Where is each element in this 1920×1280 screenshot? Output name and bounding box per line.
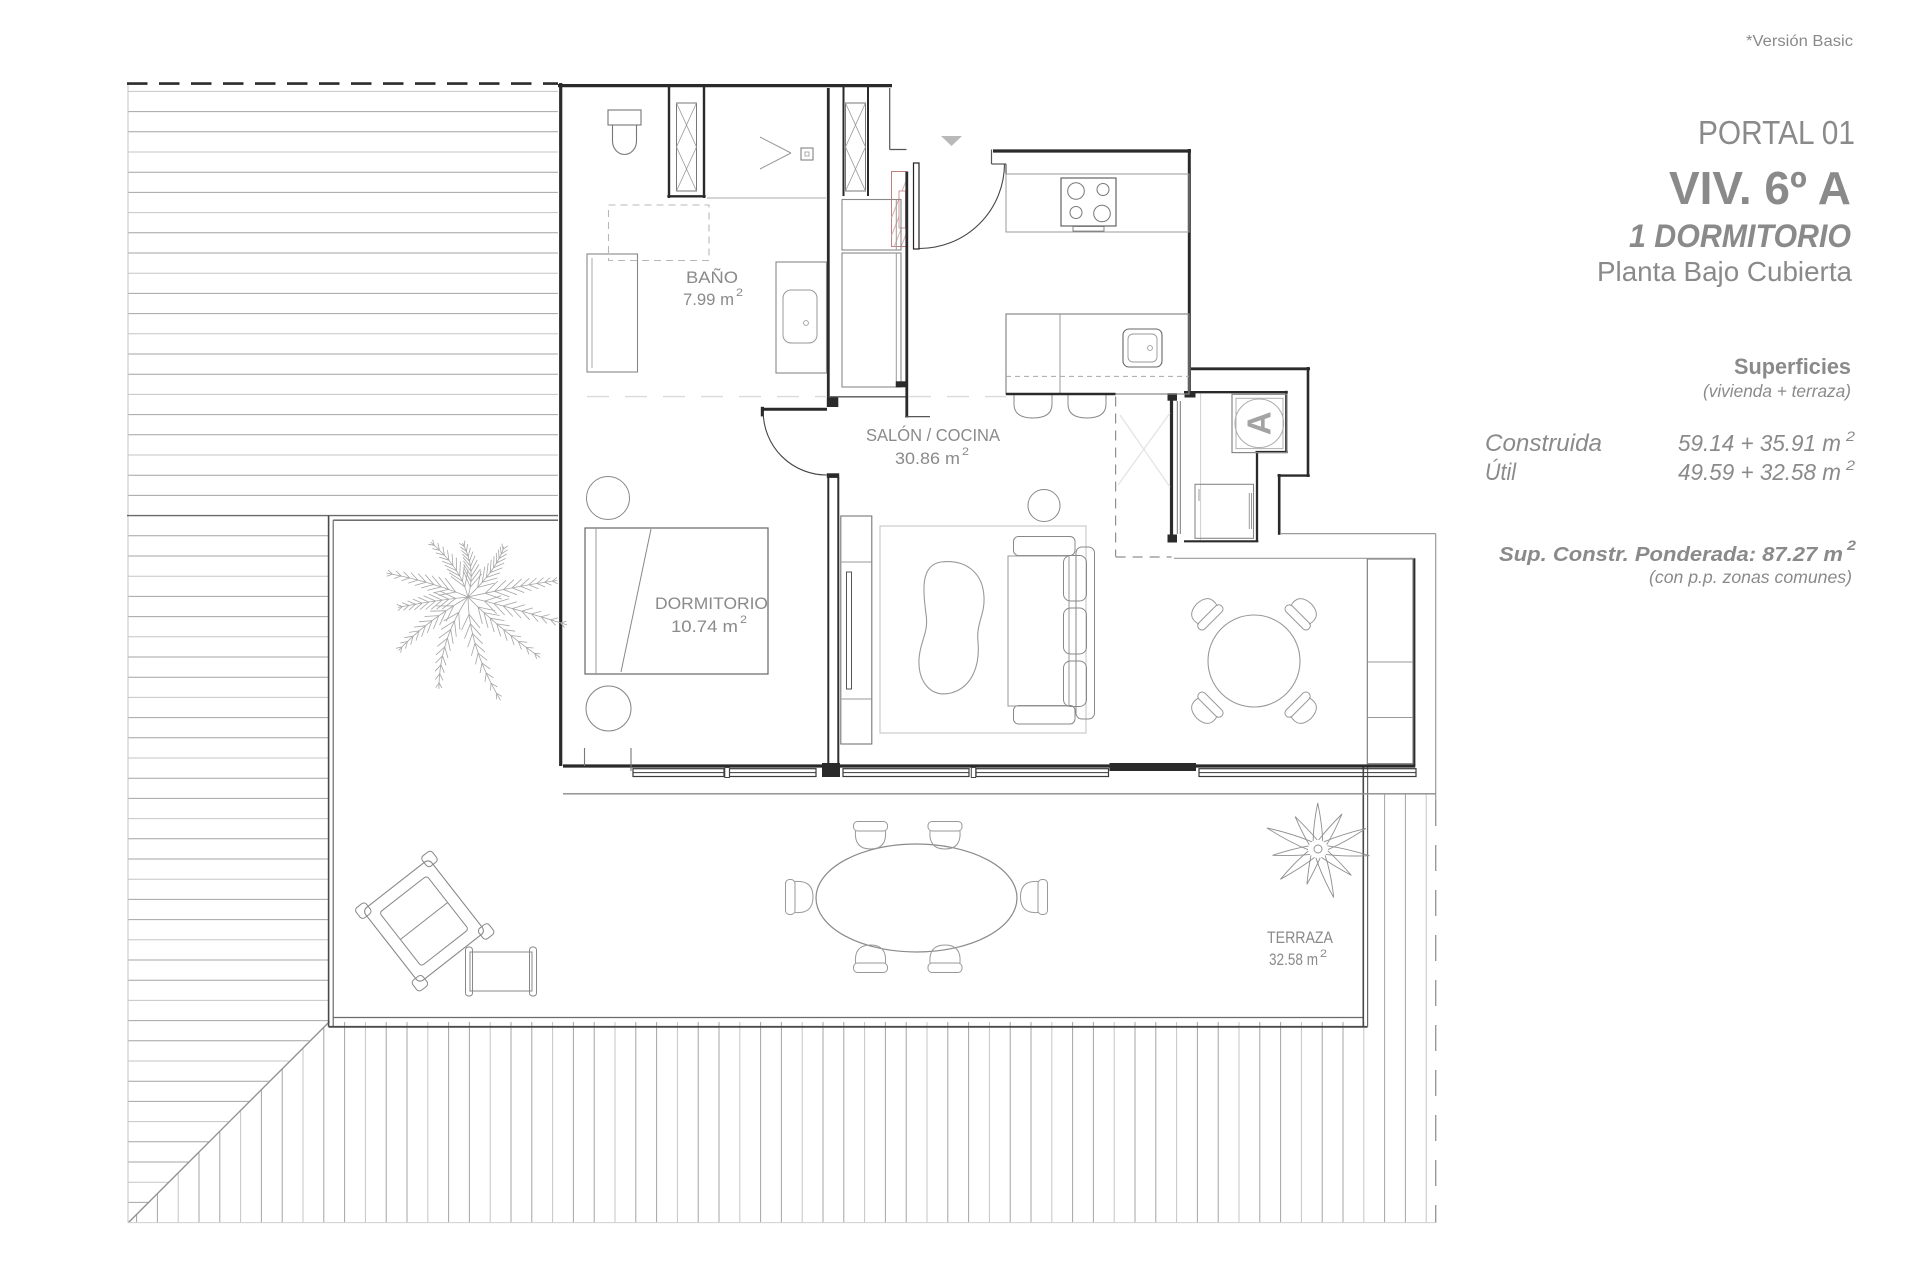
svg-text:2: 2 <box>740 614 747 626</box>
svg-text:*Versión Basic: *Versión Basic <box>1746 33 1853 50</box>
svg-text:2: 2 <box>1845 428 1855 444</box>
svg-text:32.58 m: 32.58 m <box>1269 951 1318 969</box>
svg-text:7.99 m: 7.99 m <box>683 290 734 309</box>
svg-text:2: 2 <box>1845 457 1855 473</box>
svg-text:A: A <box>1241 411 1278 435</box>
svg-text:2: 2 <box>1320 948 1327 960</box>
svg-text:49.59 + 32.58 m: 49.59 + 32.58 m <box>1678 459 1841 485</box>
svg-text:VIV. 6º A: VIV. 6º A <box>1669 162 1851 214</box>
svg-text:TERRAZA: TERRAZA <box>1267 929 1333 947</box>
svg-text:Útil: Útil <box>1485 459 1517 486</box>
svg-text:30.86 m: 30.86 m <box>895 449 960 468</box>
svg-text:2: 2 <box>1846 538 1857 553</box>
svg-text:SALÓN / COCINA: SALÓN / COCINA <box>866 424 1000 445</box>
svg-text:BAÑO: BAÑO <box>686 268 738 287</box>
svg-text:2: 2 <box>736 287 743 299</box>
svg-text:Planta Bajo Cubierta: Planta Bajo Cubierta <box>1597 256 1852 287</box>
svg-text:(con p.p. zonas comunes): (con p.p. zonas comunes) <box>1649 567 1852 587</box>
svg-text:Construida: Construida <box>1485 430 1602 457</box>
svg-text:Sup. Constr. Ponderada: 87.27: Sup. Constr. Ponderada: 87.27 m <box>1499 543 1843 566</box>
svg-text:2: 2 <box>962 446 969 458</box>
svg-text:1 DORMITORIO: 1 DORMITORIO <box>1629 218 1851 254</box>
svg-text:DORMITORIO: DORMITORIO <box>655 594 768 613</box>
svg-text:Superficies: Superficies <box>1734 354 1851 379</box>
svg-text:PORTAL 01: PORTAL 01 <box>1698 114 1855 151</box>
svg-text:59.14 + 35.91 m: 59.14 + 35.91 m <box>1678 430 1841 456</box>
svg-text:(vivienda + terraza): (vivienda + terraza) <box>1703 381 1851 401</box>
svg-text:10.74 m: 10.74 m <box>671 617 738 636</box>
